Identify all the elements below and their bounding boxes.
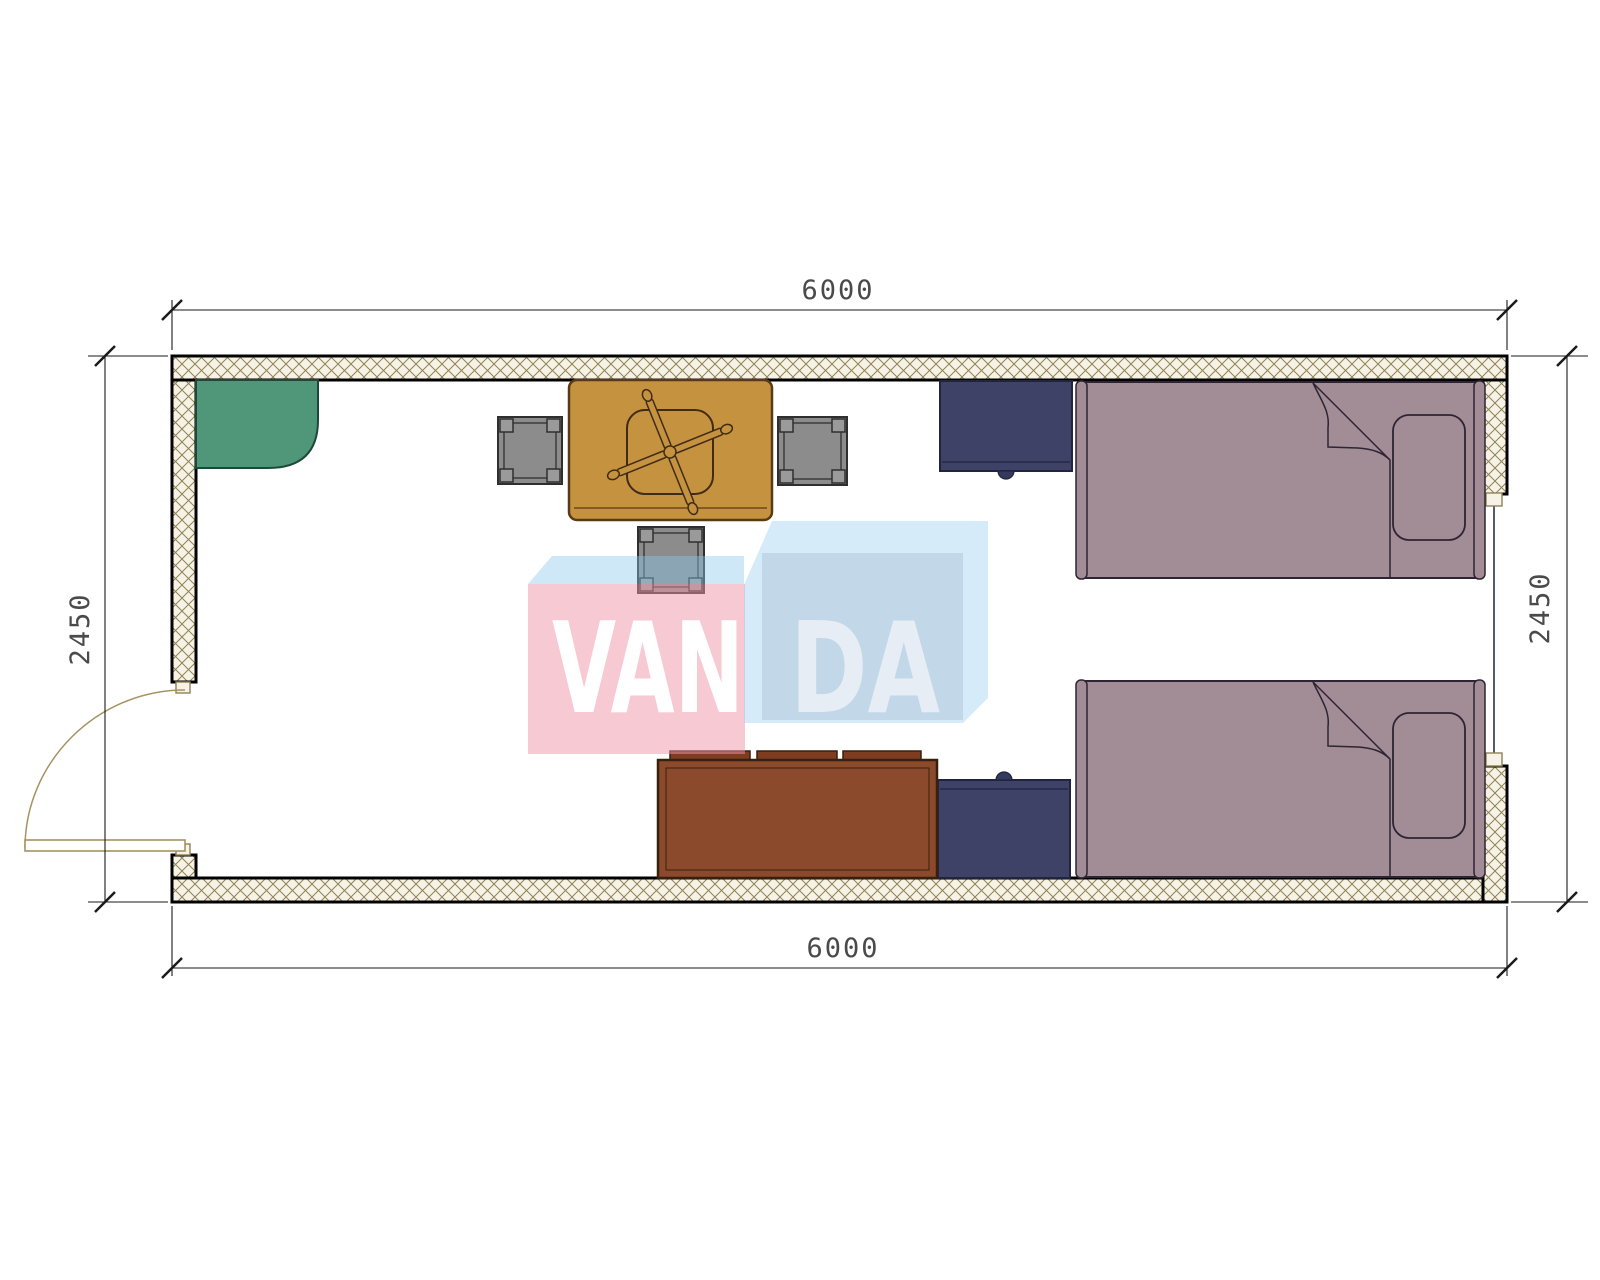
- vanda-watermark: VAN DA: [528, 521, 988, 754]
- dim-label-bottom: 6000: [806, 933, 879, 964]
- bed-top: [1076, 381, 1485, 579]
- wall-right-lower: [1483, 766, 1507, 902]
- knob: [996, 772, 1012, 780]
- watermark-left-box-top-face: [528, 556, 744, 584]
- dim-label-left: 2450: [65, 592, 96, 665]
- watermark-text-da: DA: [790, 595, 940, 742]
- corner-cabinet: [196, 380, 318, 468]
- nightstand-bottom: [938, 772, 1070, 878]
- sofa-body: [658, 760, 937, 878]
- bed-headboard: [1076, 680, 1087, 878]
- wall-bottom: [172, 878, 1507, 902]
- bed-bottom: [1076, 680, 1485, 878]
- dim-label-right: 2450: [1525, 571, 1556, 644]
- door-jamb-top: [176, 682, 190, 693]
- stool-left: [498, 417, 562, 484]
- sofa: [658, 751, 937, 878]
- stool-right: [778, 417, 847, 485]
- wall-right-upper: [1483, 380, 1507, 494]
- floorplan-canvas: VAN DA 6000 6000 2: [0, 0, 1600, 1280]
- floorplan-page: VAN DA 6000 6000 2: [0, 0, 1600, 1280]
- wall-left-upper: [172, 380, 196, 682]
- bed-pillow: [1393, 713, 1465, 838]
- bed-footboard: [1474, 381, 1485, 579]
- window: [1486, 493, 1502, 766]
- bed-headboard: [1076, 381, 1087, 579]
- knob: [998, 471, 1014, 479]
- door: [25, 682, 190, 855]
- dim-label-top: 6000: [801, 275, 874, 306]
- nightstand-top: [940, 381, 1072, 479]
- watermark-text-van: VAN: [552, 595, 744, 742]
- window-jamb-top: [1486, 493, 1502, 506]
- bed-pillow: [1393, 415, 1465, 540]
- bed-footboard: [1474, 680, 1485, 878]
- wall-top: [172, 356, 1507, 380]
- window-jamb-bottom: [1486, 753, 1502, 766]
